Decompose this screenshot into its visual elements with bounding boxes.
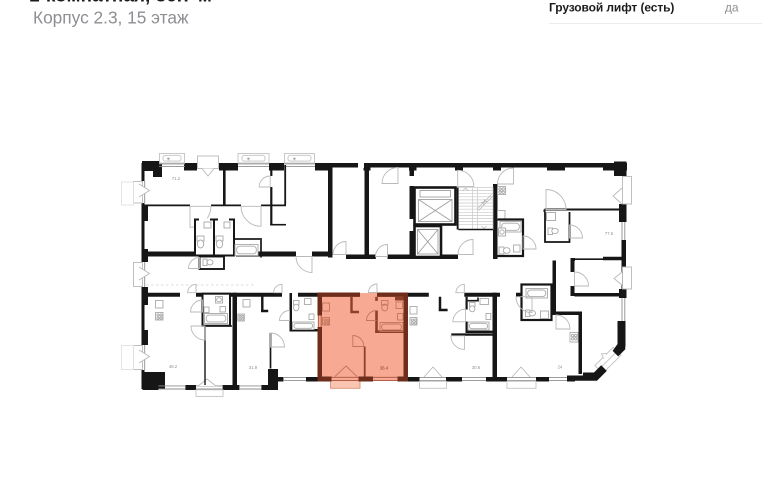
svg-text:✳: ✳ <box>167 157 171 162</box>
svg-text:77.6: 77.6 <box>605 231 614 236</box>
svg-text:✳: ✳ <box>293 157 297 162</box>
svg-text:✳: ✳ <box>247 157 251 162</box>
svg-text:48.2: 48.2 <box>169 364 178 369</box>
svg-text:Корпус 2.3, 15 этаж: Корпус 2.3, 15 этаж <box>33 8 189 28</box>
svg-text:24: 24 <box>558 365 563 370</box>
svg-text:30.6: 30.6 <box>472 365 481 370</box>
svg-text:36.4: 36.4 <box>380 366 389 371</box>
svg-text:да: да <box>725 1 739 15</box>
svg-text:31.9: 31.9 <box>249 365 258 370</box>
svg-text:71.2: 71.2 <box>172 176 181 181</box>
svg-text:1-комнатная, 36.7 м²: 1-комнатная, 36.7 м² <box>29 0 218 7</box>
svg-text:Грузовой лифт (есть): Грузовой лифт (есть) <box>549 1 674 15</box>
